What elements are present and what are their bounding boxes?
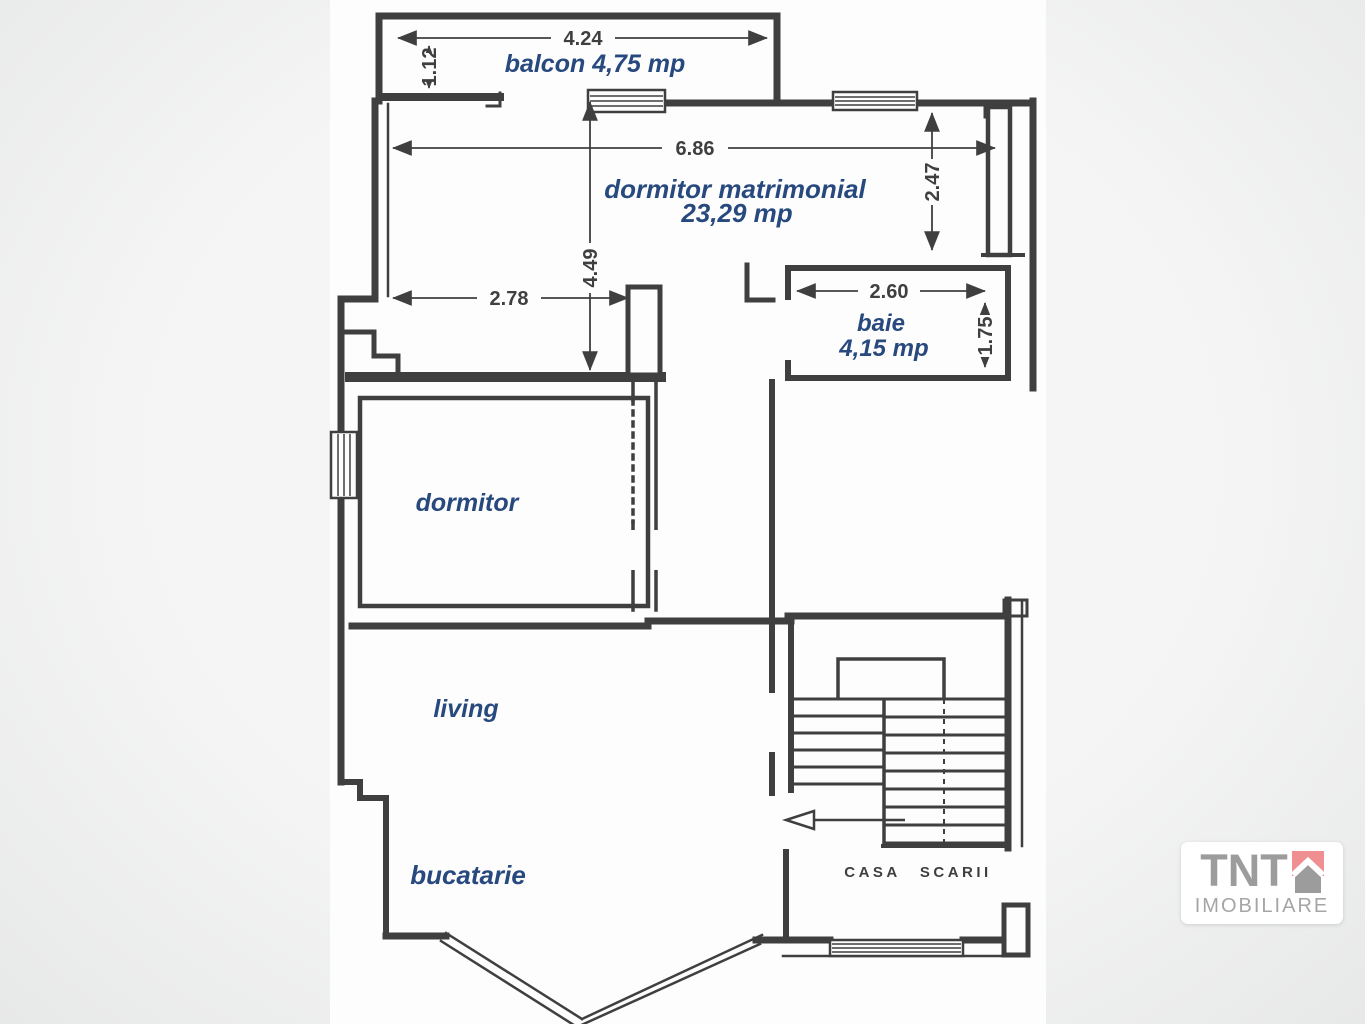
logo-subtitle: IMOBILIARE — [1195, 896, 1329, 916]
dim-master-depth-left: 4.49 — [580, 249, 602, 288]
dim-nook-width: 2.78 — [490, 288, 529, 310]
room-label-baie-area: 4,15 mp — [838, 335, 928, 362]
door-gap-central — [626, 530, 660, 570]
room-label-dormitor-matrimonial-area: 23,29 mp — [680, 198, 792, 228]
door-gap-baie — [780, 300, 796, 360]
window-master-top — [833, 92, 917, 110]
wall-master-right — [988, 107, 1010, 255]
floorplan-stage: 4.24 1.12 6.86 2.47 4.49 2.78 2.60 1.75 … — [0, 0, 1365, 1024]
stairs-landing-u — [838, 659, 944, 699]
window-entry-bottom — [830, 940, 963, 956]
window-balcony-door — [588, 90, 665, 112]
dim-master-depth-right: 2.47 — [922, 163, 944, 202]
room-label-baie: baie — [857, 310, 905, 337]
dim-bath-depth: 1.75 — [975, 317, 997, 356]
room-label-balcon: balcon 4,75 mp — [505, 50, 686, 78]
wall-vbay-left-b — [441, 941, 577, 1024]
wall-central-pillar — [628, 287, 660, 375]
room-label-dormitor: dormitor — [416, 489, 520, 517]
tnt-logo-card: TNT IMOBILIARE — [1181, 842, 1343, 924]
dim-master-width: 6.86 — [676, 138, 715, 160]
wall-nook-step — [343, 332, 398, 372]
wall-vbay-right-b — [577, 944, 760, 1024]
wall-vbay-right-a — [582, 935, 762, 1019]
stairs-treads-left — [793, 699, 884, 784]
logo-row: TNT — [1200, 851, 1323, 893]
window-dormitor-left — [331, 432, 357, 498]
staircase-group — [786, 659, 1008, 844]
room-labels: balcon 4,75 mp dormitor matrimonial 23,2… — [410, 50, 992, 890]
wall-vbay-left-a — [446, 933, 582, 1019]
logo-house-icon — [1292, 851, 1324, 893]
stairs-direction-arrowhead — [786, 811, 814, 829]
stairs-treads-right — [884, 699, 1008, 843]
wall-baie-stub — [747, 265, 773, 300]
room-label-living: living — [433, 695, 498, 723]
dim-balcony-depth: 1.12 — [419, 48, 441, 87]
dim-bath-width: 2.60 — [870, 281, 909, 303]
logo-brand-text: TNT — [1200, 851, 1287, 891]
wall-left-bottom-jog — [341, 782, 386, 936]
room-label-bucatarie: bucatarie — [410, 860, 526, 890]
dim-balcony-width: 4.24 — [564, 28, 604, 50]
room-label-casa-scarii: CASA SCARII — [844, 864, 991, 881]
wall-bottom-right-jamb — [1004, 905, 1028, 955]
floorplan-drawing: 4.24 1.12 6.86 2.47 4.49 2.78 2.60 1.75 … — [0, 0, 1365, 1024]
